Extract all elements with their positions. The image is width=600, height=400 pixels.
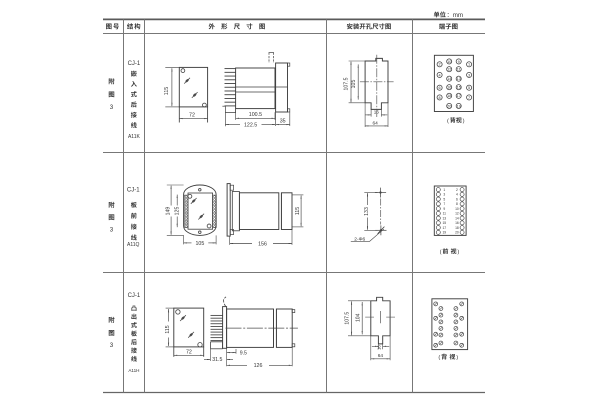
svg-text:A11K: A11K: [128, 134, 141, 140]
svg-text:8: 8: [456, 202, 458, 206]
svg-text:A11H: A11H: [128, 368, 139, 373]
svg-text:16: 16: [377, 345, 382, 350]
svg-text:(: (: [438, 355, 440, 361]
svg-text:20: 20: [455, 231, 459, 235]
svg-text:：mm: ：mm: [447, 12, 464, 19]
svg-text:CJ-1: CJ-1: [127, 188, 140, 194]
svg-text:1: 1: [443, 188, 445, 192]
svg-text:3: 3: [110, 226, 114, 233]
svg-text:107.5: 107.5: [343, 77, 349, 90]
svg-text:100.5: 100.5: [249, 112, 262, 118]
svg-text:133: 133: [364, 207, 370, 216]
svg-text:3: 3: [443, 193, 445, 197]
svg-text:9: 9: [443, 207, 445, 211]
svg-text:1: 1: [468, 63, 470, 67]
svg-text:15: 15: [457, 86, 461, 90]
svg-text:8: 8: [439, 96, 441, 100]
svg-text:5: 5: [443, 197, 445, 201]
svg-text:149: 149: [166, 207, 172, 216]
svg-text:3: 3: [110, 342, 114, 349]
svg-text:12: 12: [447, 68, 451, 72]
svg-text:31.5: 31.5: [212, 357, 222, 363]
svg-text:(: (: [447, 118, 449, 124]
svg-text:10: 10: [455, 207, 459, 211]
svg-text:105: 105: [351, 80, 357, 89]
svg-text:5: 5: [468, 86, 470, 90]
svg-text:107.5: 107.5: [345, 312, 351, 325]
svg-text:18: 18: [455, 226, 459, 230]
svg-text:): ): [456, 355, 458, 361]
svg-text:6: 6: [456, 197, 458, 201]
svg-text:2: 2: [439, 63, 441, 67]
svg-text:): ): [463, 118, 465, 124]
svg-text:126: 126: [254, 363, 263, 369]
svg-text:105: 105: [195, 241, 204, 247]
svg-text:3: 3: [468, 73, 470, 77]
svg-text:72: 72: [186, 349, 192, 355]
svg-text:16: 16: [374, 110, 380, 115]
svg-text:19: 19: [457, 104, 461, 108]
svg-text:7: 7: [468, 96, 470, 100]
svg-text:9: 9: [458, 60, 460, 64]
svg-text:122.5: 122.5: [244, 122, 257, 128]
svg-text:15: 15: [442, 221, 446, 225]
svg-text:115: 115: [164, 87, 170, 95]
svg-text:9.5: 9.5: [240, 350, 247, 356]
svg-text:2: 2: [456, 188, 458, 192]
svg-text:17: 17: [457, 94, 461, 98]
svg-text:17: 17: [442, 226, 446, 230]
svg-text:12: 12: [455, 212, 459, 216]
svg-text:14: 14: [455, 216, 459, 220]
svg-text:): ): [457, 249, 459, 255]
svg-text:104: 104: [356, 313, 362, 322]
svg-text:3: 3: [110, 104, 114, 111]
svg-text:6: 6: [439, 86, 441, 90]
svg-text:13: 13: [442, 216, 446, 220]
svg-text:125: 125: [175, 207, 181, 216]
svg-text:16: 16: [455, 221, 459, 225]
svg-text:19: 19: [442, 231, 446, 235]
svg-text:CJ-1: CJ-1: [128, 61, 141, 67]
svg-text:11: 11: [443, 212, 447, 216]
svg-text:4: 4: [439, 73, 441, 77]
svg-text:16: 16: [447, 86, 451, 90]
svg-text:11: 11: [457, 68, 461, 72]
svg-text:115: 115: [165, 325, 171, 333]
svg-text:20: 20: [447, 104, 451, 108]
svg-text:4: 4: [456, 193, 458, 197]
svg-text:A11Q: A11Q: [127, 242, 140, 248]
svg-text:10: 10: [447, 60, 451, 64]
svg-text:(: (: [440, 249, 442, 255]
svg-text:156: 156: [258, 241, 267, 247]
svg-text:7: 7: [443, 202, 445, 206]
svg-text:35: 35: [280, 119, 286, 125]
svg-text:14: 14: [447, 77, 451, 81]
svg-text:64: 64: [373, 120, 379, 126]
svg-text:18: 18: [447, 94, 451, 98]
svg-text:CJ-1: CJ-1: [128, 293, 141, 299]
svg-text:13: 13: [457, 77, 461, 81]
svg-text:115: 115: [295, 207, 301, 215]
svg-text:72: 72: [189, 113, 195, 119]
svg-text:64: 64: [378, 353, 384, 359]
